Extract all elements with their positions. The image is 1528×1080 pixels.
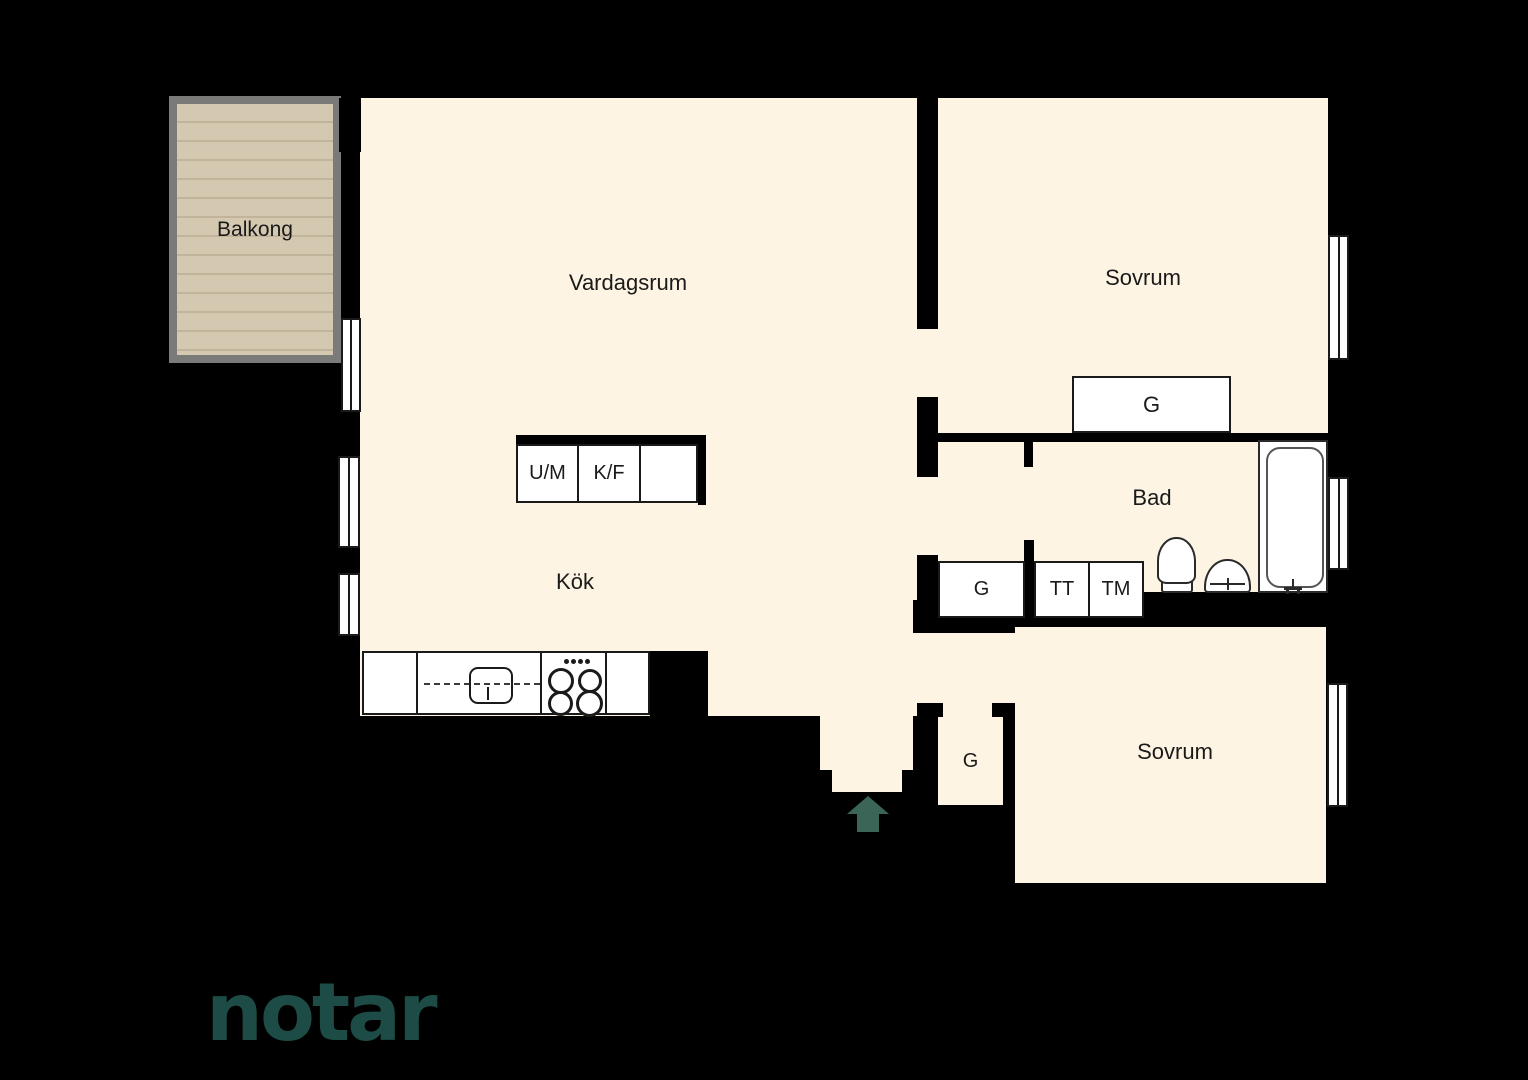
balcony-deck: Balkong	[169, 96, 341, 363]
label-vardagsrum: Vardagsrum	[569, 270, 687, 296]
washbasin-tap	[1227, 578, 1229, 590]
counter-divider	[416, 653, 418, 713]
appliance-um-label: U/M	[529, 462, 566, 485]
closet-sovrum: G	[1072, 376, 1231, 433]
bathtub-drain	[1286, 590, 1289, 594]
label-bad: Bad	[1132, 485, 1171, 511]
label-sovrum-bottom: Sovrum	[1137, 739, 1213, 765]
wall-hall-stub	[913, 600, 935, 633]
label-kok: Kök	[556, 569, 594, 595]
island-wall-top	[516, 435, 706, 444]
appliance-kf: K/F	[577, 444, 641, 503]
wall-kitchen-end	[650, 651, 708, 716]
stove-knob	[585, 659, 590, 664]
label-sovrum-top: Sovrum	[1105, 265, 1181, 291]
stove-burner	[576, 690, 603, 717]
floorplan-canvas: G Balkong U/M K/F	[0, 0, 1528, 1080]
closet-bad-label: G	[974, 578, 990, 601]
appliance-tt-label: TT	[1050, 578, 1074, 601]
wall-closet-divider	[1024, 540, 1034, 618]
balcony-label: Balkong	[217, 218, 293, 242]
closet-bad: G	[938, 561, 1025, 618]
stove-knob	[564, 659, 569, 664]
floor-entry	[832, 770, 902, 792]
toilet-icon	[1157, 537, 1196, 584]
stove-knob	[578, 659, 583, 664]
entrance-arrow-icon	[846, 796, 890, 833]
window-kok-lower	[338, 573, 360, 636]
kitchen-sink-divider	[487, 687, 489, 700]
appliance-um: U/M	[516, 444, 579, 503]
wall-vardagsrum-sovrum	[917, 98, 938, 329]
floor-corridor	[900, 633, 1015, 703]
appliance-tm: TM	[1088, 561, 1144, 618]
appliance-empty	[639, 444, 698, 503]
closet-hall: G	[938, 717, 1003, 805]
wall-hall-lower	[917, 555, 938, 592]
bathtub-drain	[1297, 590, 1300, 594]
counter-divider	[605, 653, 607, 713]
wall-balcony-stub	[339, 98, 361, 152]
window-sovrum-bottom	[1327, 683, 1348, 807]
stove-knob	[571, 659, 576, 664]
floor-hall	[820, 716, 913, 770]
appliance-tm-label: TM	[1102, 578, 1131, 601]
counter-divider	[540, 653, 542, 713]
window-sovrum-top	[1328, 235, 1349, 360]
wall-hall-upper	[917, 397, 938, 477]
bathtub-icon	[1258, 440, 1328, 593]
wall-bad-stub	[1024, 442, 1033, 467]
appliance-tt: TT	[1034, 561, 1090, 618]
kitchen-sink	[469, 667, 513, 704]
island-wall-right	[698, 435, 706, 505]
window-bad	[1328, 477, 1349, 570]
closet-sovrum-label: G	[1143, 392, 1160, 418]
balcony-door-window	[341, 318, 361, 412]
bathtub-inner	[1266, 447, 1324, 588]
stove-burner	[548, 691, 573, 716]
floor-closet-door-gap	[943, 700, 992, 717]
kitchen-counter	[362, 651, 650, 715]
closet-hall-label: G	[963, 750, 979, 773]
appliance-kf-label: K/F	[593, 462, 624, 485]
notar-logo: notar	[206, 966, 435, 1059]
window-kok-upper	[338, 456, 360, 548]
